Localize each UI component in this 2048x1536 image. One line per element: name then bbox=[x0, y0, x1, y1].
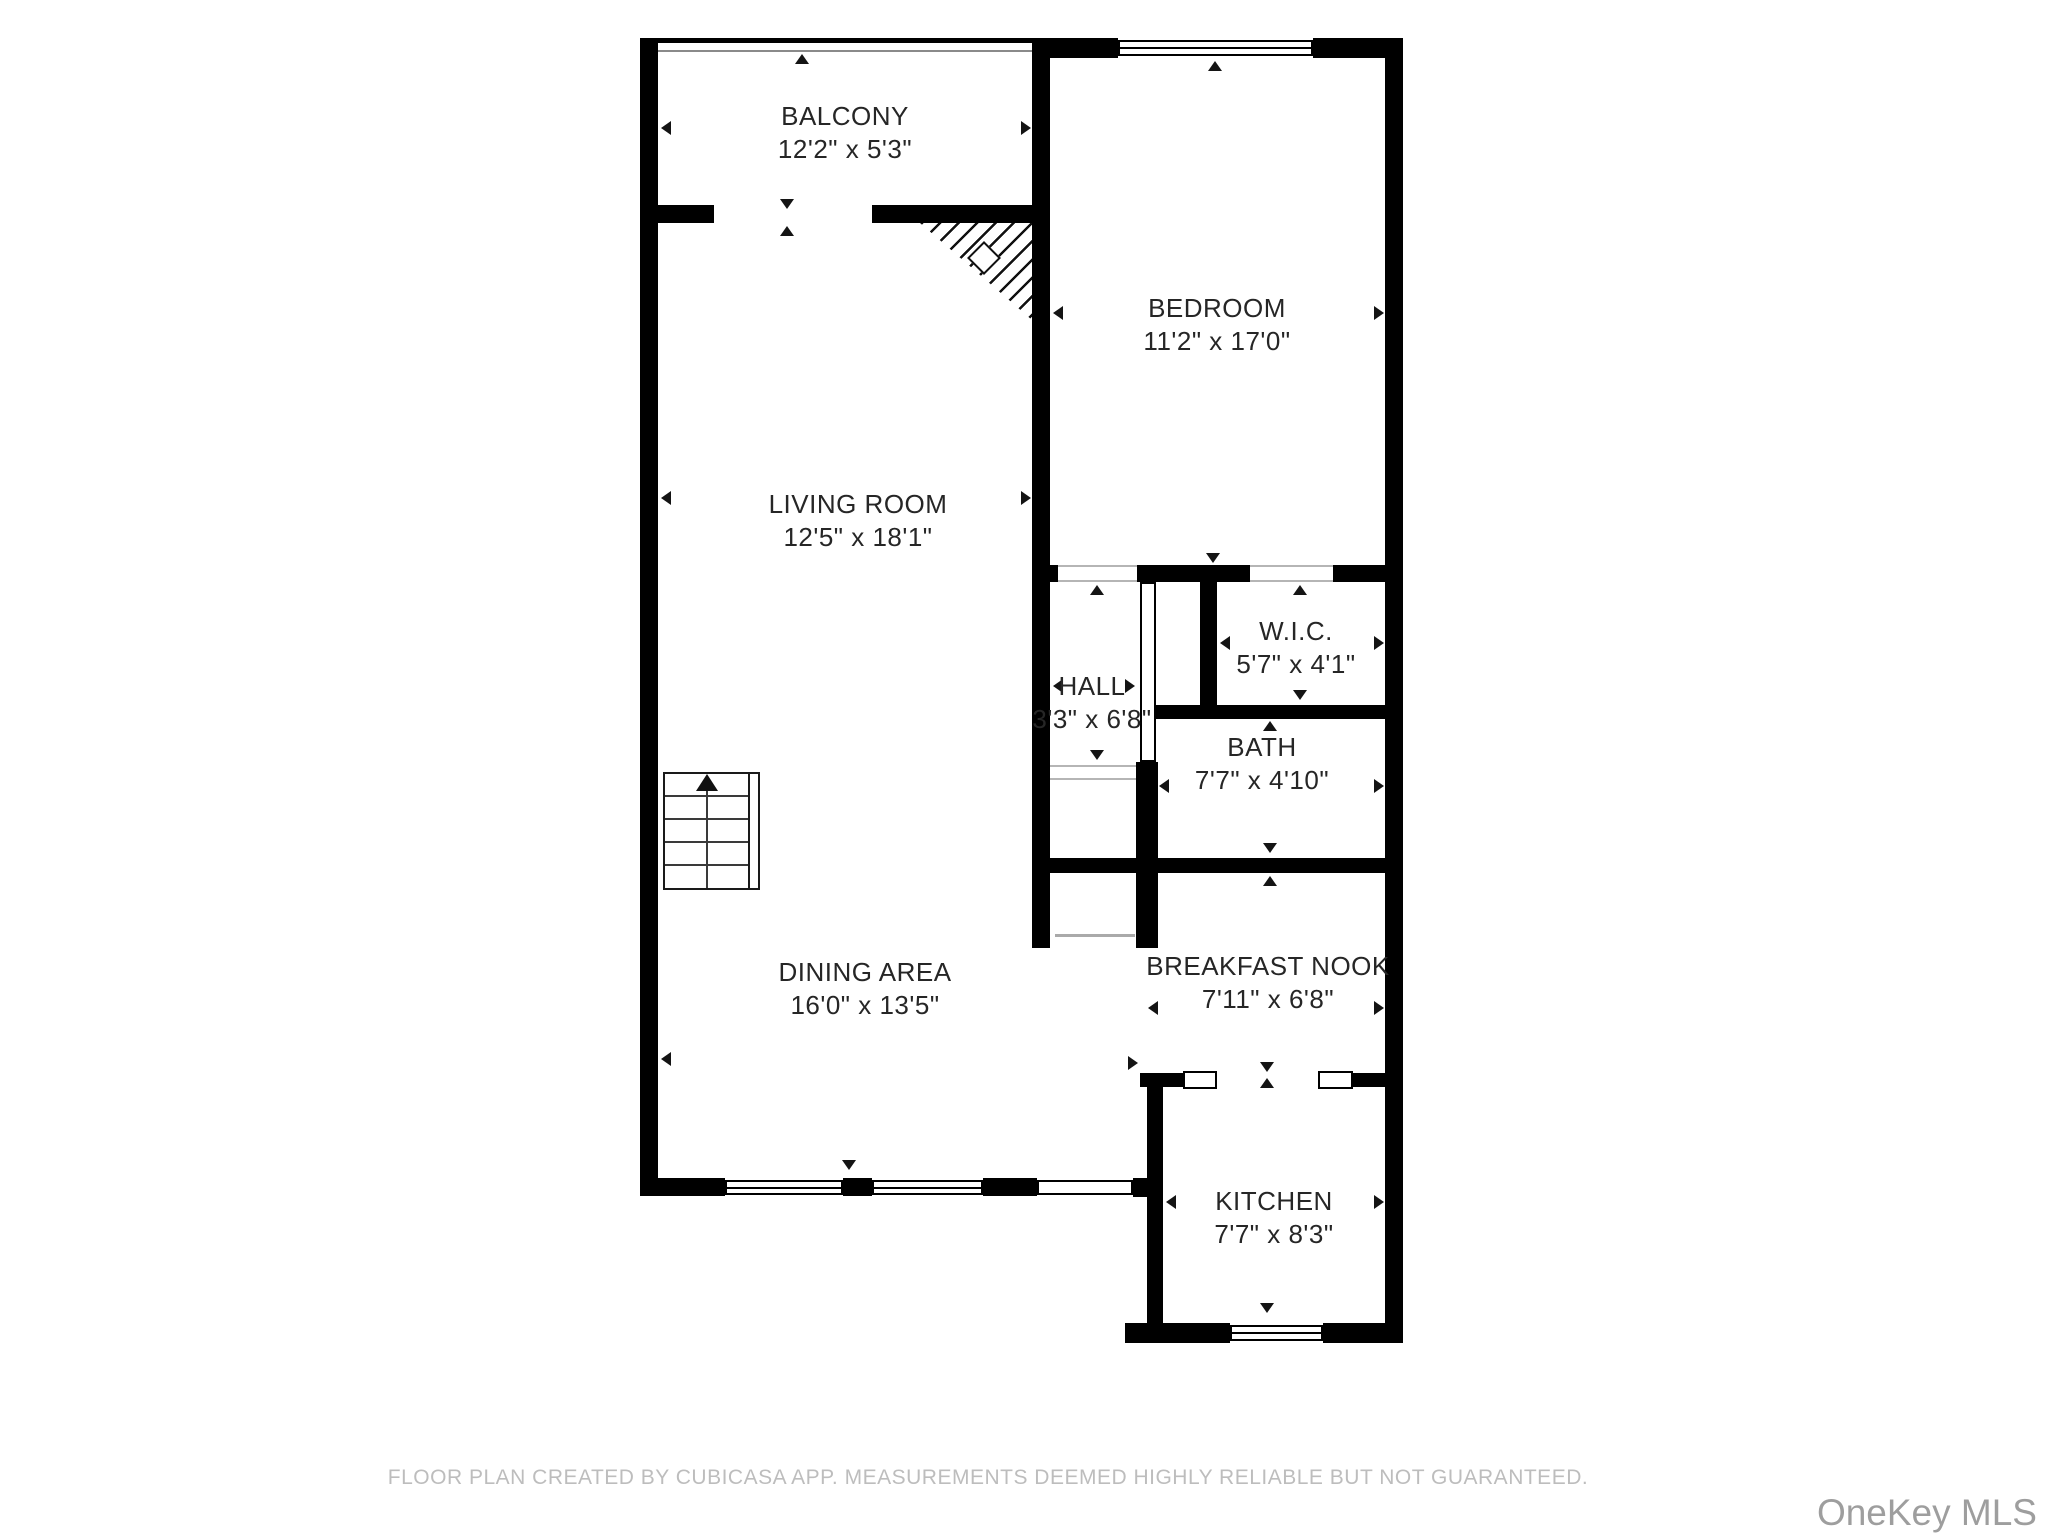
wall-bedroom-bottom-a bbox=[1050, 565, 1058, 582]
wall-bedroom-bottom-c bbox=[1333, 565, 1403, 582]
room-dims: 12'2" x 5'3" bbox=[778, 133, 912, 166]
room-name: BREAKFAST NOOK bbox=[1146, 950, 1389, 983]
room-dims: 3'3" x 6'8" bbox=[1032, 703, 1151, 736]
wall-kitchen-top-right bbox=[1353, 1073, 1385, 1087]
wall-kitchen-left-stub bbox=[1133, 1178, 1163, 1197]
floor-plan-canvas: BALCONY 12'2" x 5'3" BEDROOM 11'2" x 17'… bbox=[0, 0, 2048, 1536]
dim-marker-left-icon bbox=[1220, 636, 1230, 650]
dim-marker-right-icon bbox=[1374, 1195, 1384, 1209]
wall-balcony-bottom-left bbox=[658, 205, 714, 223]
closet-opening-line bbox=[1055, 934, 1135, 937]
room-name: KITCHEN bbox=[1214, 1185, 1333, 1218]
wall-dining-kitchen-divider bbox=[1037, 1180, 1133, 1195]
room-name: DINING AREA bbox=[778, 956, 951, 989]
pass-through-slot-left bbox=[1183, 1071, 1217, 1089]
room-label-wic: W.I.C. 5'7" x 4'1" bbox=[1236, 615, 1355, 681]
door-opening-wic bbox=[1250, 565, 1333, 582]
door-opening-hall-top bbox=[1058, 565, 1137, 582]
room-dims: 12'5" x 18'1" bbox=[769, 521, 948, 554]
dim-marker-up-icon bbox=[780, 226, 794, 236]
wall-bath-bottom bbox=[1032, 858, 1403, 873]
dim-marker-down-icon bbox=[1293, 690, 1307, 700]
dim-marker-left-icon bbox=[661, 1052, 671, 1066]
room-name: BATH bbox=[1195, 731, 1329, 764]
dim-marker-down-icon bbox=[842, 1160, 856, 1170]
room-name: BALCONY bbox=[778, 100, 912, 133]
dim-marker-down-icon bbox=[1260, 1062, 1274, 1072]
dim-marker-left-icon bbox=[1159, 779, 1169, 793]
dim-marker-up-icon bbox=[1090, 585, 1104, 595]
wall-right-outer bbox=[1385, 38, 1403, 1343]
window-dining-1 bbox=[725, 1180, 843, 1195]
window-kitchen bbox=[1230, 1325, 1323, 1341]
wall-dining-bottom-a bbox=[640, 1178, 725, 1196]
dim-marker-down-icon bbox=[1260, 1303, 1274, 1313]
dim-marker-left-icon bbox=[661, 491, 671, 505]
room-dims: 7'7" x 8'3" bbox=[1214, 1218, 1333, 1251]
dim-marker-down-icon bbox=[780, 199, 794, 209]
wall-hall-right-lower bbox=[1136, 762, 1158, 948]
room-dims: 7'11" x 6'8" bbox=[1146, 983, 1389, 1016]
dim-marker-up-icon bbox=[795, 54, 809, 64]
dim-marker-right-icon bbox=[1374, 306, 1384, 320]
pass-through-slot-right bbox=[1318, 1071, 1353, 1089]
wall-kitchen-bottom-b bbox=[1323, 1323, 1403, 1343]
room-dims: 5'7" x 4'1" bbox=[1236, 648, 1355, 681]
dim-marker-down-icon bbox=[1206, 553, 1220, 563]
wall-left-outer bbox=[640, 38, 658, 1196]
door-opening-hall-bottom bbox=[1050, 765, 1136, 780]
room-name: LIVING ROOM bbox=[769, 488, 948, 521]
wall-kitchen-left bbox=[1147, 1073, 1163, 1338]
room-name: HALL bbox=[1032, 670, 1151, 703]
stair-direction-line bbox=[706, 790, 708, 888]
dim-marker-left-icon bbox=[1166, 1195, 1176, 1209]
room-label-bedroom: BEDROOM 11'2" x 17'0" bbox=[1143, 292, 1290, 358]
stairs-icon bbox=[663, 772, 760, 890]
room-label-kitchen: KITCHEN 7'7" x 8'3" bbox=[1214, 1185, 1333, 1251]
dim-marker-up-icon bbox=[1293, 585, 1307, 595]
dim-marker-up-icon bbox=[1208, 61, 1222, 71]
room-label-hall: HALL 3'3" x 6'8" bbox=[1032, 670, 1151, 736]
wall-kitchen-bottom-a bbox=[1125, 1323, 1230, 1343]
room-name: BEDROOM bbox=[1143, 292, 1290, 325]
dim-marker-down-icon bbox=[1263, 843, 1277, 853]
mls-watermark: OneKey MLS bbox=[1817, 1492, 2037, 1534]
dim-marker-right-icon bbox=[1374, 779, 1384, 793]
room-label-breakfast-nook: BREAKFAST NOOK 7'11" x 6'8" bbox=[1146, 950, 1389, 1016]
stair-rail bbox=[748, 774, 750, 888]
dim-marker-left-icon bbox=[661, 121, 671, 135]
room-dims: 7'7" x 4'10" bbox=[1195, 764, 1329, 797]
dim-marker-right-icon bbox=[1021, 491, 1031, 505]
room-label-balcony: BALCONY 12'2" x 5'3" bbox=[778, 100, 912, 166]
room-dims: 16'0" x 13'5" bbox=[778, 989, 951, 1022]
dim-marker-up-icon bbox=[1260, 1078, 1274, 1088]
room-label-bath: BATH 7'7" x 4'10" bbox=[1195, 731, 1329, 797]
dim-marker-up-icon bbox=[1263, 876, 1277, 886]
room-dims: 11'2" x 17'0" bbox=[1143, 325, 1290, 358]
wall-dining-bottom-b bbox=[843, 1178, 872, 1196]
fireplace-hatch-icon bbox=[920, 223, 1032, 320]
room-label-dining-area: DINING AREA 16'0" x 13'5" bbox=[778, 956, 951, 1022]
balcony-railing bbox=[658, 38, 1032, 52]
wall-dining-bottom-c bbox=[983, 1178, 1037, 1196]
wall-bath-top bbox=[1156, 705, 1403, 719]
wall-wic-left bbox=[1200, 582, 1217, 707]
stair-up-arrow-icon bbox=[696, 774, 718, 791]
dim-marker-up-icon bbox=[1263, 721, 1277, 731]
dim-marker-left-icon bbox=[1053, 306, 1063, 320]
dim-marker-down-icon bbox=[1090, 750, 1104, 760]
dim-marker-right-icon bbox=[1374, 636, 1384, 650]
window-bedroom bbox=[1118, 40, 1313, 56]
dim-marker-right-icon bbox=[1021, 121, 1031, 135]
room-label-living-room: LIVING ROOM 12'5" x 18'1" bbox=[769, 488, 948, 554]
wall-balcony-bottom-right bbox=[872, 205, 1032, 223]
dim-marker-right-icon bbox=[1128, 1056, 1138, 1070]
footer-disclaimer: FLOOR PLAN CREATED BY CUBICASA APP. MEAS… bbox=[388, 1466, 1588, 1490]
room-name: W.I.C. bbox=[1236, 615, 1355, 648]
wall-living-right bbox=[1032, 52, 1050, 948]
wall-bedroom-bottom-b bbox=[1137, 565, 1250, 582]
window-dining-2 bbox=[872, 1180, 983, 1195]
